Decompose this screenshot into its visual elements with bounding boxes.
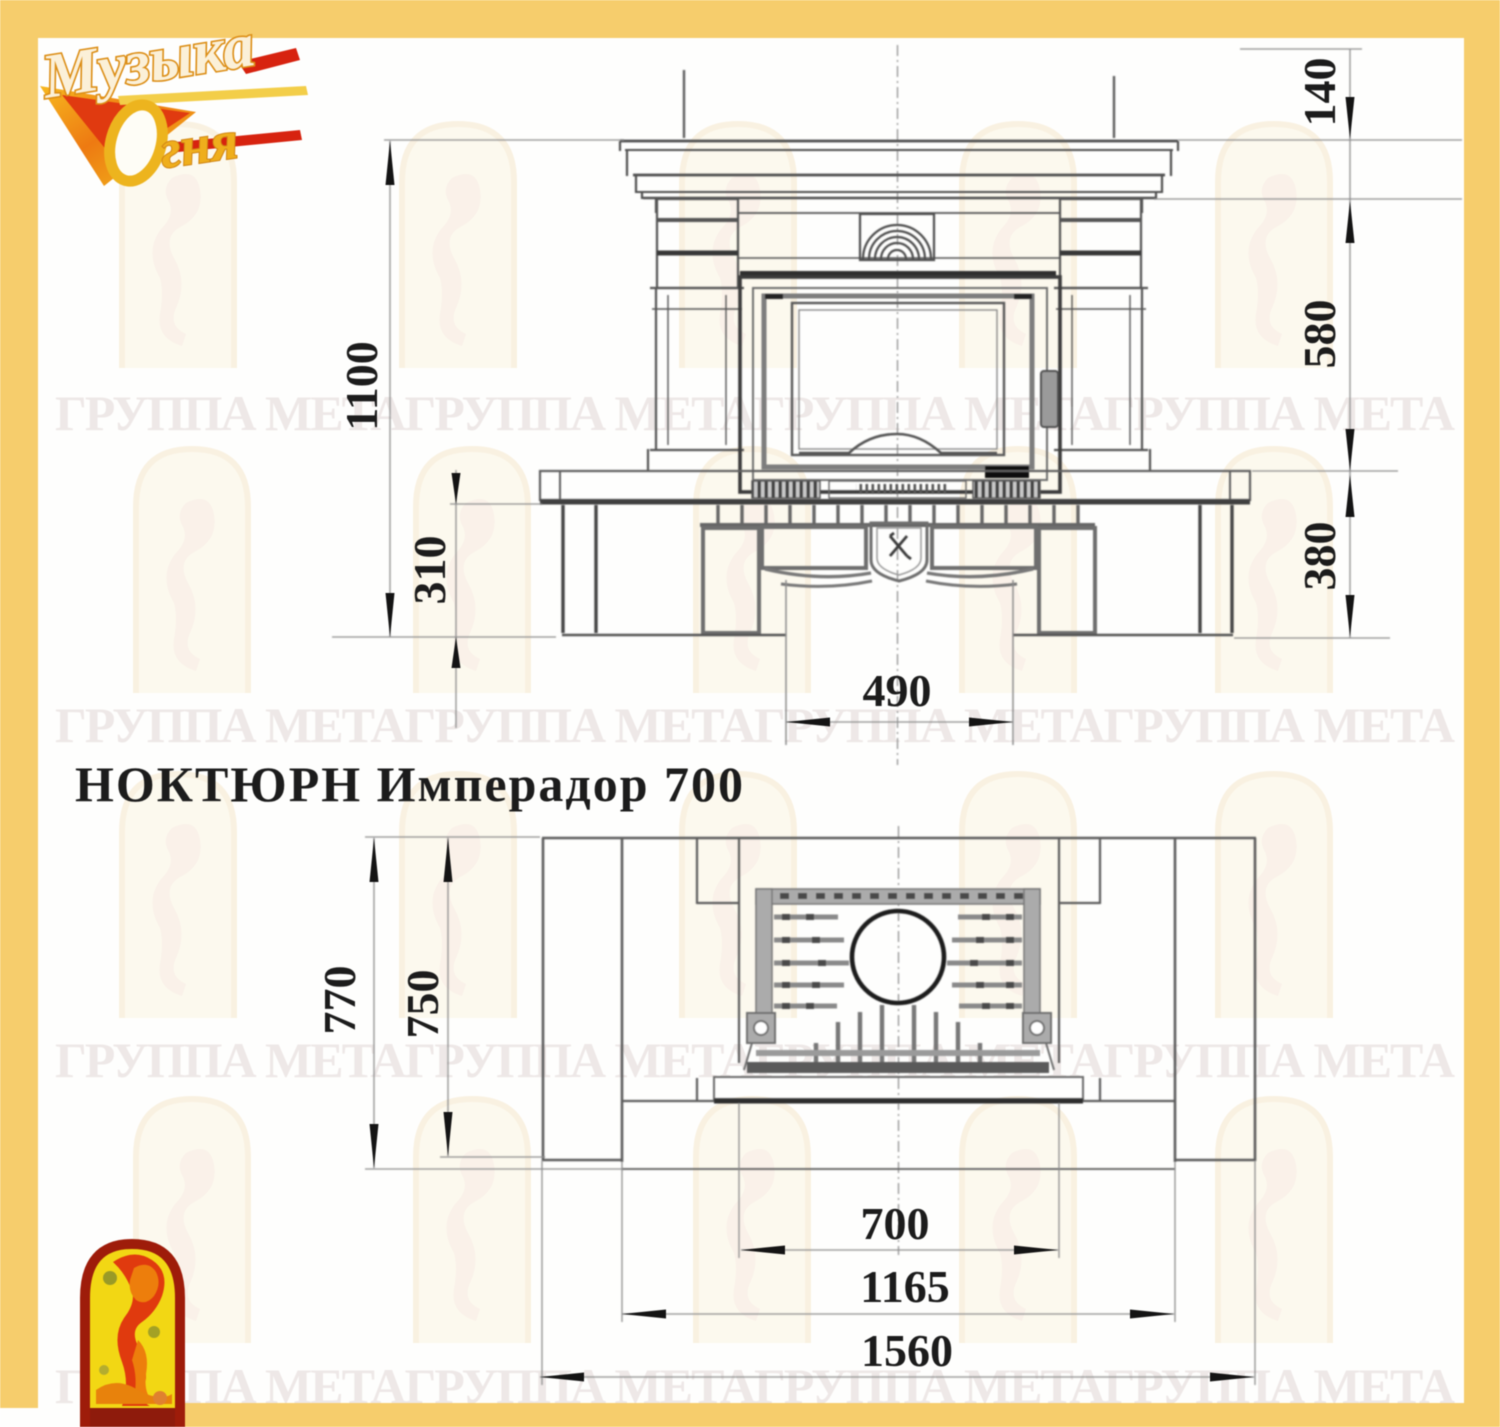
svg-text:750: 750 [397, 970, 448, 1039]
svg-text:140: 140 [1294, 58, 1345, 127]
svg-text:310: 310 [404, 536, 455, 605]
svg-text:700: 700 [861, 1198, 930, 1249]
svg-text:380: 380 [1294, 522, 1345, 591]
svg-text:гня: гня [156, 110, 241, 180]
svg-text:1165: 1165 [860, 1261, 949, 1312]
svg-text:ГРУППА МЕТАГРУППА МЕТАГРУППА М: ГРУППА МЕТАГРУППА МЕТАГРУППА МЕТАГРУППА … [55, 697, 1455, 753]
svg-text:770: 770 [314, 966, 365, 1035]
svg-text:ГРУППА МЕТАГРУППА МЕТАГРУППА М: ГРУППА МЕТАГРУППА МЕТАГРУППА МЕТАГРУППА … [55, 385, 1455, 441]
svg-text:НОКТЮРН Имперадор 700: НОКТЮРН Имперадор 700 [75, 756, 743, 812]
svg-text:490: 490 [863, 665, 932, 716]
svg-text:580: 580 [1294, 300, 1345, 369]
svg-text:1100: 1100 [336, 341, 387, 430]
svg-text:1560: 1560 [861, 1325, 953, 1376]
